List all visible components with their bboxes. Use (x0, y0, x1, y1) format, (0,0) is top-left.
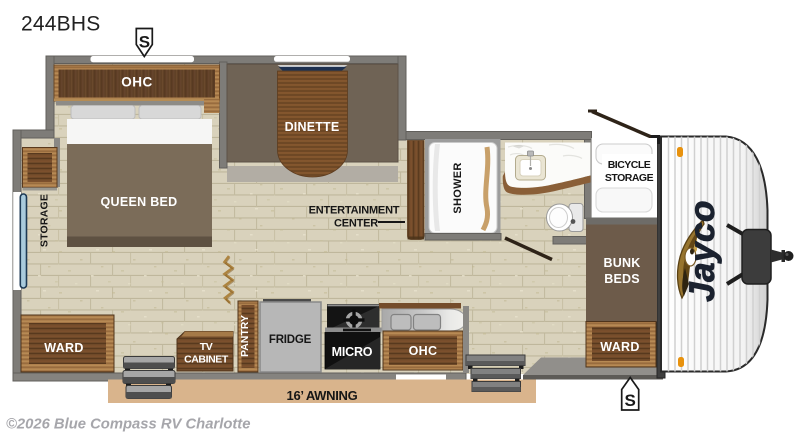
svg-text:S: S (139, 33, 150, 52)
svg-text:MICRO: MICRO (332, 345, 373, 359)
svg-text:CENTER: CENTER (334, 218, 378, 230)
svg-text:S: S (625, 391, 636, 410)
svg-text:OHC: OHC (121, 75, 153, 90)
svg-text:©2026 Blue Compass RV Charlott: ©2026 Blue Compass RV Charlotte (6, 417, 250, 433)
svg-text:BEDS: BEDS (604, 272, 640, 286)
svg-text:244BHS: 244BHS (21, 13, 100, 36)
svg-text:16’ AWNING: 16’ AWNING (287, 388, 358, 403)
svg-text:STORAGE: STORAGE (39, 194, 51, 247)
svg-text:SHOWER: SHOWER (452, 162, 464, 213)
svg-text:BICYCLE: BICYCLE (608, 159, 651, 171)
svg-text:Jayco: Jayco (683, 200, 722, 302)
svg-text:CABINET: CABINET (184, 354, 229, 366)
svg-text:ENTERTAINMENT: ENTERTAINMENT (309, 205, 400, 217)
svg-text:WARD: WARD (600, 340, 639, 354)
svg-text:QUEEN BED: QUEEN BED (100, 195, 177, 209)
svg-text:OHC: OHC (409, 344, 438, 358)
svg-text:TV: TV (200, 341, 213, 353)
svg-text:STORAGE: STORAGE (605, 172, 654, 184)
svg-text:PANTRY: PANTRY (239, 315, 251, 357)
svg-text:WARD: WARD (44, 341, 83, 355)
svg-text:BUNK: BUNK (604, 256, 641, 270)
svg-text:DINETTE: DINETTE (285, 120, 340, 134)
svg-text:FRIDGE: FRIDGE (269, 334, 312, 346)
